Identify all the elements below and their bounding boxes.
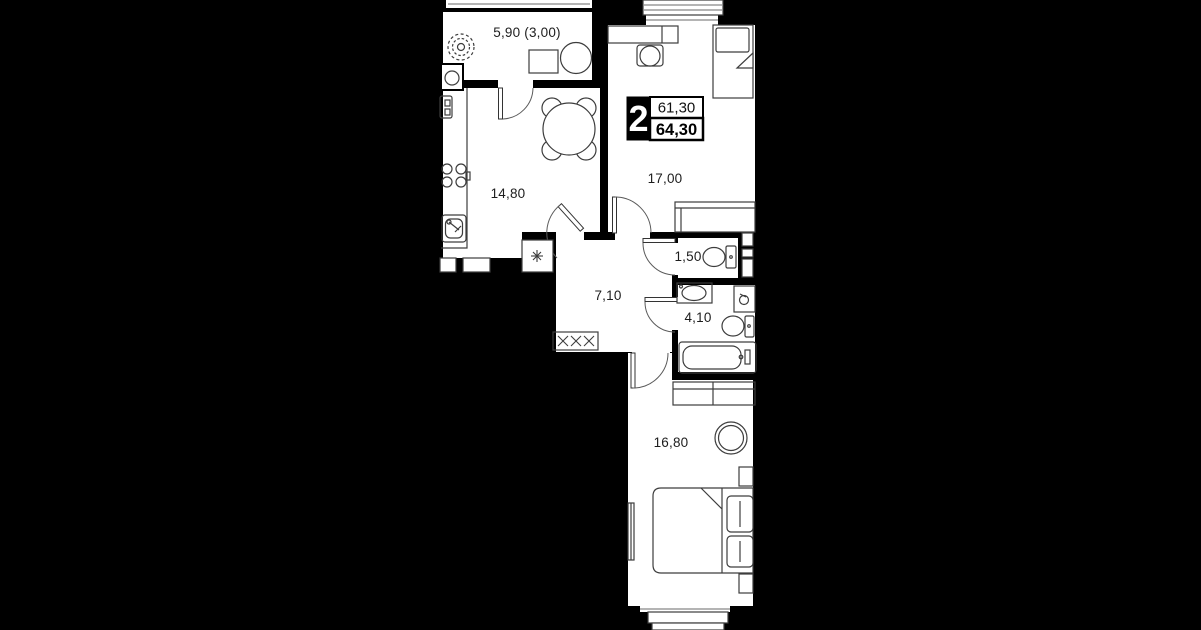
floor-plan: 5,90 (3,00) 14,80 17,00 1,50 4,10 7,10 1… xyxy=(0,0,1201,630)
vent-shaft xyxy=(742,259,753,277)
living-door-panel xyxy=(613,197,617,233)
room-area-label: 1,50 xyxy=(674,249,701,264)
balcony-chair-icon xyxy=(561,43,592,74)
appliance-asterisk-icon xyxy=(522,240,553,272)
badge-area-bottom: 64,30 xyxy=(656,121,697,139)
washing-machine-icon xyxy=(441,64,463,90)
lower-balcony-step xyxy=(652,623,724,630)
room-area-label: 4,10 xyxy=(684,310,711,325)
dining-table-icon xyxy=(542,98,596,160)
badge-area-top: 61,30 xyxy=(658,100,696,117)
room-kitchen-lower xyxy=(443,232,522,258)
wc-door-panel xyxy=(643,239,675,243)
kitchen-window xyxy=(463,258,490,272)
apartment-badge: 2 61,30 64,30 xyxy=(627,97,703,140)
vent-shaft xyxy=(742,249,753,257)
room-area-label: 5,90 (3,00) xyxy=(493,25,561,40)
room-area-label: 14,80 xyxy=(491,186,526,201)
room-area-label: 7,10 xyxy=(594,288,621,303)
bathroom-door-panel xyxy=(645,298,677,302)
upper-balcony-outline xyxy=(643,0,723,15)
room-area-label: 17,00 xyxy=(648,171,683,186)
room-bedroom xyxy=(628,380,753,606)
badge-rooms-count: 2 xyxy=(628,98,648,139)
lower-balcony-outline xyxy=(648,612,728,623)
vent-shaft xyxy=(742,233,753,246)
room-area-label: 16,80 xyxy=(654,435,689,450)
balcony-door-panel xyxy=(499,88,503,119)
floor-plan-canvas: 5,90 (3,00) 14,80 17,00 1,50 4,10 7,10 1… xyxy=(0,0,1201,630)
kitchen-window xyxy=(440,258,456,272)
bedroom-door-panel xyxy=(631,353,635,388)
